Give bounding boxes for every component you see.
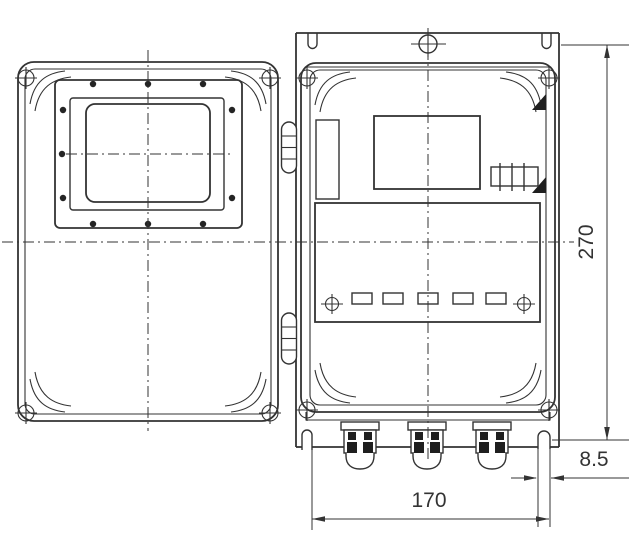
- open-view-enclosure: [296, 28, 560, 469]
- corner-ornament: [30, 71, 71, 111]
- dimension-height-label: 270: [575, 224, 598, 259]
- enclosure-technical-drawing: 270 170 8.5: [0, 0, 630, 538]
- cable-gland-icon: [473, 422, 511, 469]
- hinges: [282, 122, 297, 364]
- corner-ornament: [500, 363, 541, 403]
- corner-ornament: [500, 72, 541, 112]
- corner-screw-icon: [538, 399, 560, 421]
- cover-screw-icon: [321, 294, 343, 314]
- arrow-up-icon: [604, 45, 610, 58]
- latch-triangle-icon: [532, 177, 546, 193]
- drawing-canvas: 270 170 8.5: [0, 0, 630, 538]
- dimension-width-label: 170: [411, 489, 446, 512]
- terminal-block: [491, 163, 538, 191]
- corner-screw-icon: [296, 399, 318, 421]
- arrow-right-icon: [536, 516, 549, 522]
- corner-ornament: [225, 71, 266, 111]
- dimension-slot-label: 8.5: [579, 448, 608, 471]
- pcb-slot: [316, 120, 339, 199]
- corner-ornament: [30, 372, 71, 412]
- front-view-closed-door: [15, 50, 281, 431]
- cable-gland-icon: [408, 422, 446, 469]
- hinge-bottom: [282, 313, 297, 364]
- arrow-right-icon: [524, 475, 537, 481]
- corner-screw-icon: [538, 67, 560, 89]
- mounting-slot-bottom-right: [538, 431, 550, 449]
- corner-screw-icon: [296, 67, 318, 89]
- cover-screw-icon: [513, 294, 535, 314]
- keypad-cutouts: [352, 293, 506, 304]
- dimension-slot-width: 8.5: [511, 448, 629, 481]
- arrow-down-icon: [604, 427, 610, 440]
- display-module: [374, 116, 480, 189]
- mounting-slot-top-left: [308, 33, 317, 49]
- arrow-left-icon: [312, 516, 325, 522]
- corner-ornament: [225, 372, 266, 412]
- corner-ornament: [315, 72, 356, 112]
- arrow-left-icon: [551, 475, 564, 481]
- mounting-slot-bottom-left: [302, 430, 312, 450]
- hinge-top: [282, 122, 297, 173]
- mounting-slot-top-right: [542, 33, 551, 49]
- corner-ornament: [315, 363, 356, 403]
- cable-gland-icon: [341, 422, 379, 469]
